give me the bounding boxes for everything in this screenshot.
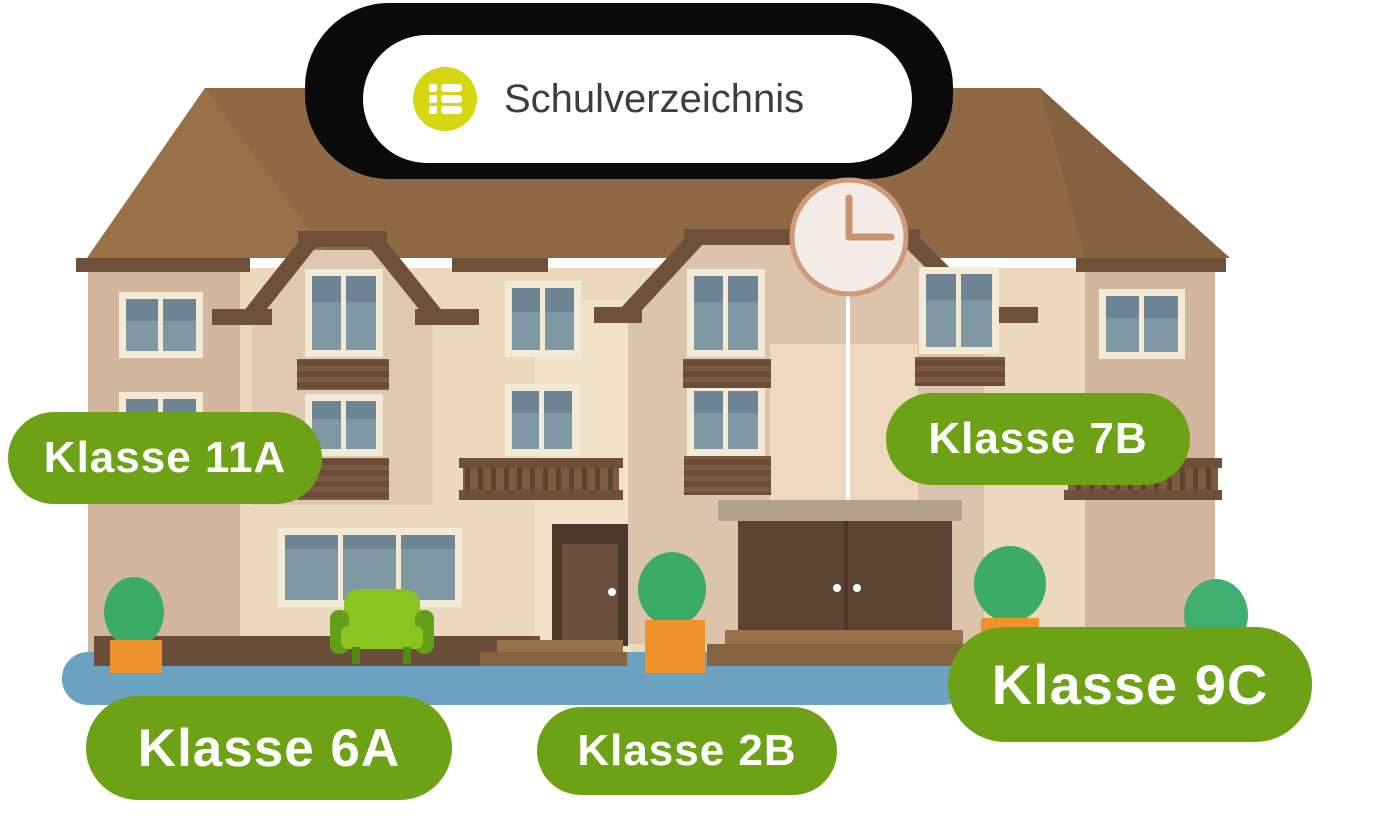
window-right-tower-3f	[1099, 289, 1185, 359]
class-label-11a[interactable]: Klasse 11A	[8, 412, 322, 504]
window-middle-2f	[505, 384, 579, 456]
spandrel	[915, 357, 1005, 386]
door-steps	[480, 640, 627, 666]
class-label-7b[interactable]: Klasse 7B	[886, 393, 1190, 485]
window-center-gable-left-3f	[687, 269, 765, 357]
spandrel	[683, 359, 771, 388]
class-label-2b[interactable]: Klasse 2B	[537, 707, 837, 795]
balcony-left	[459, 458, 623, 500]
single-door	[552, 524, 628, 646]
window-middle-3f	[505, 281, 581, 357]
spandrel	[297, 359, 389, 390]
class-label-6a[interactable]: Klasse 6A	[86, 696, 452, 800]
eave-right-tower	[1076, 258, 1226, 272]
clock-cord	[846, 292, 850, 504]
window-center-gable-right-3f	[919, 267, 999, 354]
bush-left	[104, 577, 164, 673]
eave-middle	[452, 258, 548, 272]
list-icon	[413, 67, 477, 131]
school-directory-chip[interactable]: Schulverzeichnis	[363, 35, 912, 163]
entrance-canopy	[718, 500, 962, 521]
bush-center	[638, 552, 706, 673]
window-left-tower-3f	[119, 292, 203, 358]
double-door	[738, 521, 952, 642]
clock	[792, 180, 906, 294]
school-directory-title: Schulverzeichnis	[504, 77, 804, 122]
window-left-gable-3f	[305, 269, 383, 357]
canvas: Schulverzeichnis Klasse 11A Klasse 7B Kl…	[0, 0, 1392, 836]
spandrel	[684, 456, 771, 495]
window-center-gable-2f	[687, 384, 765, 456]
eave-left-tower	[76, 258, 250, 272]
entrance-steps	[707, 630, 969, 666]
class-label-9c[interactable]: Klasse 9C	[948, 627, 1312, 742]
